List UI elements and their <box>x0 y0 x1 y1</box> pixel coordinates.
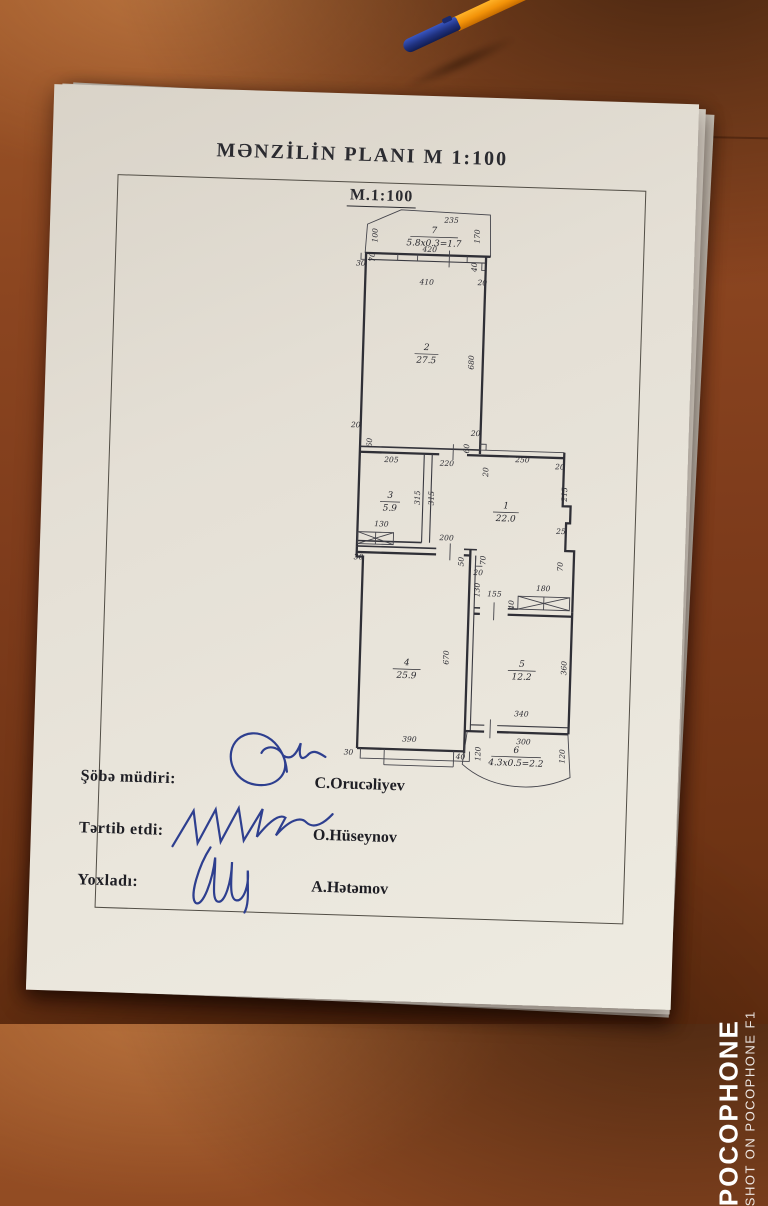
signature-name: O.Hüseynov <box>313 827 398 848</box>
dim-label: 155 <box>487 589 502 598</box>
dim-label: 130 <box>472 582 481 597</box>
dim-label: 20 <box>472 568 483 577</box>
room-number: 5 <box>519 660 525 670</box>
dimension-labels: 235 420 100 170 30 70 410 40 20 680 20 6… <box>339 213 583 765</box>
floor-plan-sheet: MƏNZİLİN PLANI M 1:100 M.1:100 <box>26 84 699 1010</box>
dim-label: 40 <box>507 600 516 611</box>
room-number: 6 <box>513 746 519 756</box>
room-area: 12.2 <box>511 672 531 683</box>
dim-label: 340 <box>514 709 529 718</box>
dim-label: 390 <box>402 734 417 743</box>
dim-label: 30 <box>356 258 366 267</box>
dim-label: 20 <box>554 462 565 471</box>
dim-label: 60 <box>365 437 374 447</box>
signature-role: Şöbə müdiri: <box>80 767 176 788</box>
dim-label: 420 <box>421 245 437 254</box>
dim-label: 170 <box>473 229 482 244</box>
pen-body <box>452 0 535 31</box>
signature-name: C.Orucəliyev <box>314 775 405 796</box>
dim-label: 20 <box>481 467 490 478</box>
dim-label: 60 <box>462 444 471 454</box>
dim-label: 30 <box>354 552 364 561</box>
dim-label: 70 <box>368 252 377 262</box>
dim-label: 180 <box>536 584 551 593</box>
dim-label: 70 <box>556 562 565 572</box>
pen-cap <box>401 16 461 54</box>
dim-label: 70 <box>478 555 487 565</box>
dim-label: 215 <box>560 487 569 503</box>
signature-name: A.Hətəmov <box>311 879 388 899</box>
dim-label: 315 <box>413 490 422 505</box>
ballpoint-pen <box>401 0 536 55</box>
dim-label: 205 <box>383 455 399 464</box>
dim-label: 315 <box>427 491 436 506</box>
document-title: MƏNZİLİN PLANI M 1:100 <box>92 135 632 175</box>
room-number: 2 <box>423 343 430 353</box>
dim-label: 100 <box>370 228 379 243</box>
vent-shaft-2 <box>518 596 570 611</box>
room-area: 5.9 <box>383 504 398 514</box>
floor-plan-drawing: 1 22.0 2 27.5 3 5.9 4 25.9 5 12.2 6 4.3x… <box>333 194 610 814</box>
room-area: 22.0 <box>495 514 516 525</box>
watermark-subtitle: SHOT ON POCOPHONE F1 <box>743 1010 758 1206</box>
dim-label: 670 <box>441 650 450 665</box>
plan-walls <box>345 209 588 789</box>
dim-label: 40 <box>470 262 479 273</box>
dim-label: 680 <box>467 355 476 370</box>
room-number: 1 <box>503 501 509 511</box>
dim-label: 220 <box>439 459 455 468</box>
dim-label: 20 <box>350 420 361 429</box>
dim-label: 200 <box>438 533 454 542</box>
dim-label: 360 <box>559 661 568 676</box>
signature-role: Tərtib etdi: <box>79 819 164 840</box>
dim-label: 50 <box>456 557 465 567</box>
dim-label: 300 <box>516 737 531 746</box>
dim-label: 235 <box>443 216 459 225</box>
room-area: 27.5 <box>415 356 436 367</box>
room-number: 7 <box>431 226 437 236</box>
signature-role: Yoxladı: <box>77 871 138 891</box>
camera-watermark: POCOPHONE SHOT ON POCOPHONE F1 <box>716 1010 758 1206</box>
watermark-brand: POCOPHONE <box>716 1010 743 1206</box>
dim-label: 250 <box>514 455 530 464</box>
dim-label: 20 <box>476 278 487 287</box>
signature-scribble <box>178 838 268 917</box>
vent-shaft-1 <box>357 532 393 545</box>
room-area: 25.9 <box>395 671 416 682</box>
dim-label: 410 <box>418 277 434 286</box>
dim-label: 20 <box>470 429 481 438</box>
dim-label: 130 <box>374 519 389 528</box>
dim-label: 25 <box>555 527 566 536</box>
room-number: 3 <box>387 491 393 501</box>
room-number: 4 <box>403 658 410 668</box>
